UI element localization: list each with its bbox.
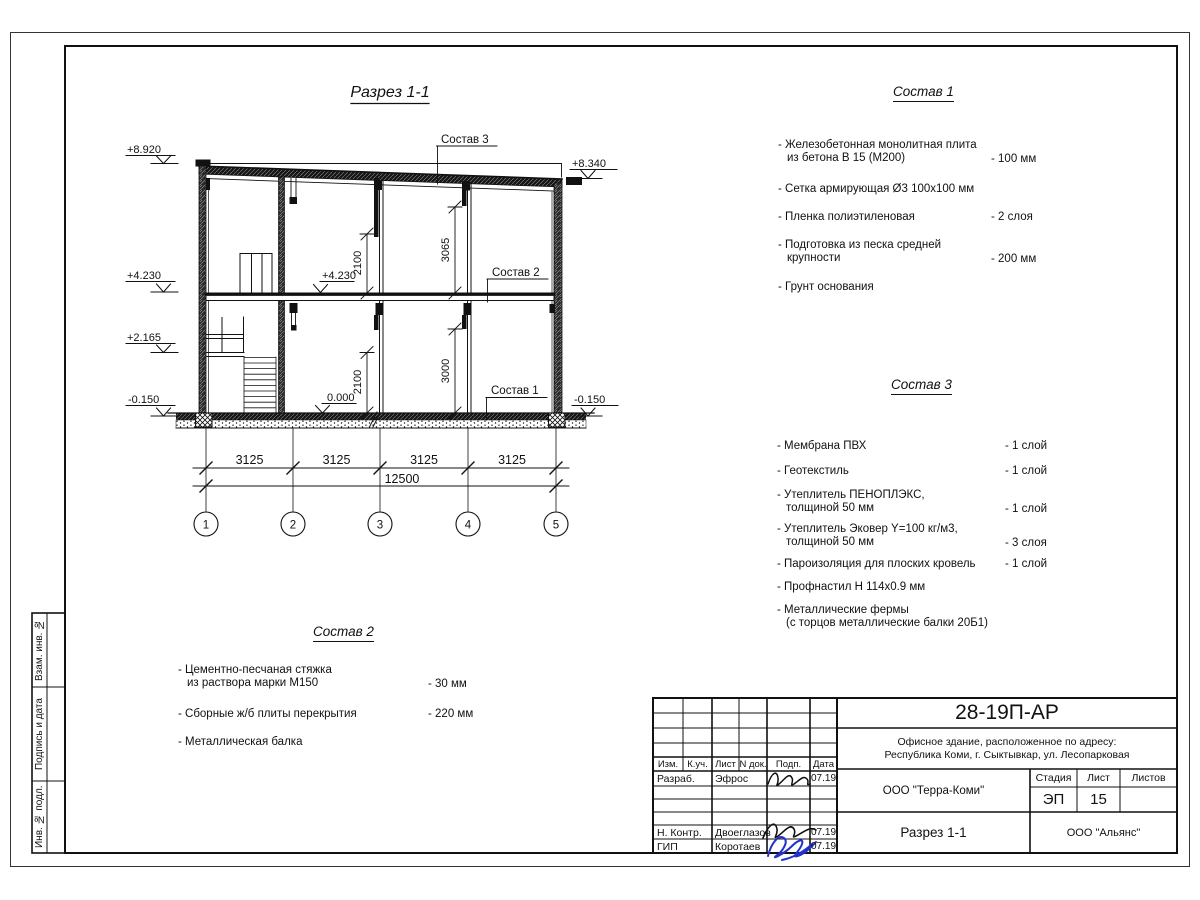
elev-8340: +8.340 [572, 158, 606, 170]
row-date: 07.19 [810, 825, 837, 839]
list-item: - Утеплитель Эковер Y=100 кг/м3, толщино… [777, 523, 958, 549]
list-item-value: - 30 мм [428, 678, 467, 691]
leader-sostav1: Состав 1 [491, 385, 539, 397]
ground-slab [168, 412, 594, 428]
row-name: Эфрос [715, 773, 748, 785]
stage-label: Стадия [1030, 769, 1077, 787]
stamp-label-vzam: Взам. инв. № [32, 613, 47, 687]
list-item: - Подготовка из песка средней крупности [778, 239, 941, 265]
list-item: - Грунт основания [778, 281, 874, 294]
row-role: Разраб. [657, 773, 695, 785]
col-izm: Изм. [653, 757, 683, 771]
floor-slab [206, 293, 554, 301]
total-dim: 12500 [385, 472, 420, 486]
leader-sostav3: Состав 3 [441, 134, 489, 146]
elev-minus150-left: -0.150 [128, 394, 159, 406]
sheets-label: Листов [1120, 769, 1177, 787]
elev-2165: +2.165 [127, 332, 161, 344]
elev-0000: 0.000 [327, 392, 355, 404]
sostav1-title: Состав 1 [893, 84, 954, 102]
list-item: - Утеплитель ПЕНОПЛЭКС, толщиной 50 мм [777, 489, 925, 515]
elev-minus150-right: -0.150 [574, 394, 605, 406]
list-item-value: - 1 слой [1005, 558, 1047, 571]
leader-sostav2: Состав 2 [492, 267, 540, 279]
bay-dim-1: 3125 [236, 453, 264, 467]
list-item: - Сборные ж/б плиты перекрытия [178, 708, 357, 721]
axis-label-1: 1 [203, 520, 209, 532]
list-item-value: - 3 слоя [1005, 537, 1047, 550]
bay-dim-3: 3125 [410, 453, 438, 467]
list-item-value: - 100 мм [991, 153, 1036, 166]
elev-8920: +8.920 [127, 144, 161, 156]
col-ndok: N док. [739, 757, 767, 771]
row-role: ГИП [657, 841, 678, 853]
col-kuch: К.уч. [683, 757, 712, 771]
list-item: - Пароизоляция для плоских кровель [777, 558, 976, 571]
axis-label-4: 4 [465, 520, 472, 532]
dim-2100-lower: 2100 [352, 370, 364, 394]
list-item: - Мембрана ПВХ [777, 440, 866, 453]
org-name: ООО "Терра-Коми" [837, 769, 1030, 812]
drawing-sheet: Разрез 1-1 [0, 0, 1200, 900]
list-item-value: - 1 слой [1005, 465, 1047, 478]
project-address: Офисное здание, расположенное по адресу:… [837, 729, 1177, 769]
org2-name: ООО "Альянс" [1030, 812, 1177, 853]
axis-label-2: 2 [290, 520, 296, 532]
sheet-title: Разрез 1-1 [837, 812, 1030, 853]
stair-treads [244, 357, 276, 413]
left-wall [196, 160, 211, 414]
col-list: Лист [712, 757, 739, 771]
signature-korotaev [768, 837, 816, 860]
stairs [206, 254, 276, 414]
dim-3065: 3065 [440, 238, 452, 262]
bay-dim-4: 3125 [498, 453, 526, 467]
section-drawing: Разрез 1-1 [126, 84, 618, 536]
dim-3000: 3000 [440, 359, 452, 383]
list-item: - Сетка армирующая Ø3 100х100 мм [778, 183, 974, 196]
roof-slab [199, 166, 582, 191]
list-item: - Металлическая балка [178, 736, 302, 749]
list-item-value: - 1 слой [1005, 440, 1047, 453]
list-item: - Профнастил Н 114х0.9 мм [777, 581, 925, 594]
stamp-label-inv: Инв. № подл. [32, 781, 47, 853]
row-date: 07.19 [810, 771, 837, 786]
drawing-title: Разрез 1-1 [350, 84, 429, 101]
col-data: Дата [810, 757, 837, 771]
axis-label-3: 3 [377, 520, 383, 532]
list-item: - Железобетонная монолитная плита из бет… [778, 139, 977, 165]
row-name: Двоеглазов [715, 827, 771, 839]
signature-efros [768, 773, 810, 785]
row-date: 07.19 [810, 839, 837, 853]
list-item-value: - 1 слой [1005, 503, 1047, 516]
elev-4230-inner: +4.230 [322, 270, 356, 282]
col-podp: Подп. [767, 757, 810, 771]
sostav3-title: Состав 3 [891, 377, 952, 395]
list-item-value: - 220 мм [428, 708, 473, 721]
row-role: Н. Контр. [657, 827, 702, 839]
list-item: - Пленка полиэтиленовая [778, 211, 915, 224]
sheet-number: 15 [1077, 787, 1120, 812]
foundation-left [196, 413, 213, 427]
stamp-label-podpis: Подпись и дата [32, 687, 47, 781]
sheet-label: Лист [1077, 769, 1120, 787]
doc-number: 28-19П-АР [837, 699, 1177, 727]
row-name: Коротаев [715, 841, 760, 853]
elev-4230-margin: +4.230 [127, 270, 161, 282]
bay-dim-2: 3125 [323, 453, 351, 467]
list-item: - Металлические фермы (с торцов металлич… [777, 604, 988, 630]
list-item: - Цементно-песчаная стяжка из раствора м… [178, 664, 332, 690]
stage-value: ЭП [1030, 787, 1077, 812]
foundation-right [549, 413, 566, 427]
axis-label-5: 5 [553, 520, 559, 532]
list-item-value: - 2 слоя [991, 211, 1033, 224]
list-item: - Геотекстиль [777, 465, 849, 478]
list-item-value: - 200 мм [991, 253, 1036, 266]
sostav2-title: Состав 2 [313, 624, 374, 642]
